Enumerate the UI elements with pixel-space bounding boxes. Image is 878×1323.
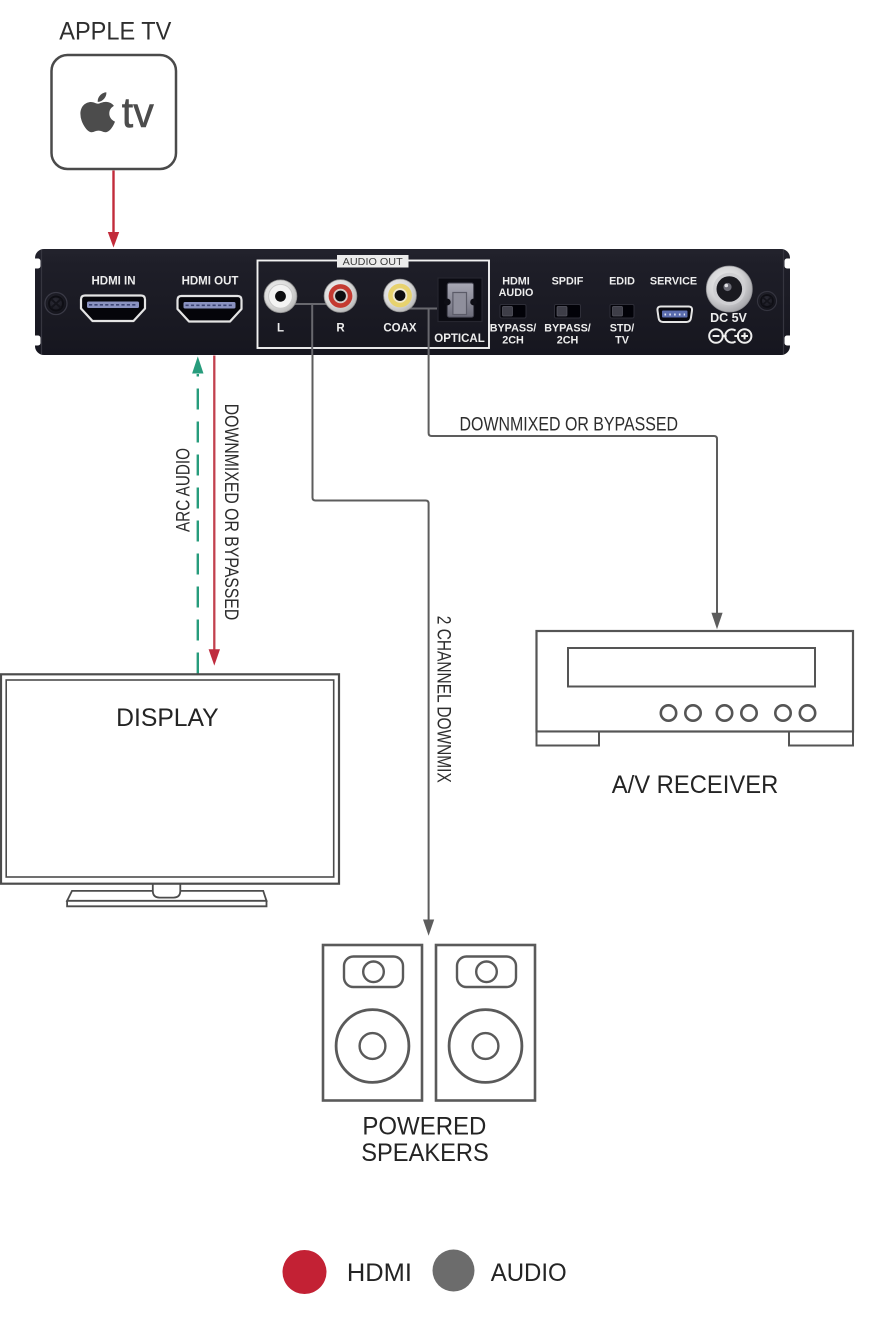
svg-text:2CH: 2CH [557,335,579,347]
svg-text:SPDIF: SPDIF [552,276,584,288]
svg-text:OPTICAL: OPTICAL [434,333,484,345]
svg-text:BYPASS/: BYPASS/ [544,323,591,335]
svg-text:DC 5V: DC 5V [710,311,747,325]
svg-text:R: R [336,323,345,335]
svg-text:BYPASS/: BYPASS/ [490,323,537,335]
svg-text:AUDIO: AUDIO [499,287,534,299]
svg-text:A/V RECEIVER: A/V RECEIVER [612,771,779,799]
svg-text:AUDIO OUT: AUDIO OUT [343,256,404,268]
svg-text:APPLE TV: APPLE TV [59,18,171,46]
svg-text:DOWNMIXED OR BYPASSED: DOWNMIXED OR BYPASSED [460,415,679,436]
svg-text:tv: tv [122,89,154,137]
svg-text:2CH: 2CH [502,335,524,347]
svg-text:HDMI IN: HDMI IN [91,276,135,288]
svg-text:TV: TV [615,335,630,347]
svg-text:SPEAKERS: SPEAKERS [361,1139,489,1167]
svg-text:POWERED: POWERED [362,1113,486,1141]
svg-text:2 CHANNEL DOWNMIX: 2 CHANNEL DOWNMIX [432,616,453,783]
svg-text:L: L [277,323,284,335]
svg-text:HDMI: HDMI [347,1259,412,1287]
svg-text:COAX: COAX [383,323,417,335]
svg-text:DISPLAY: DISPLAY [116,704,219,732]
svg-text:SERVICE: SERVICE [650,276,697,288]
svg-text:HDMI OUT: HDMI OUT [182,276,239,288]
svg-text:AUDIO: AUDIO [491,1259,567,1287]
svg-text:ARC AUDIO: ARC AUDIO [174,448,195,532]
svg-text:EDID: EDID [609,276,635,288]
svg-text:HDMI: HDMI [502,276,530,288]
svg-text:DOWNMIXED OR BYPASSED: DOWNMIXED OR BYPASSED [220,404,241,621]
svg-text:STD/: STD/ [610,323,635,335]
